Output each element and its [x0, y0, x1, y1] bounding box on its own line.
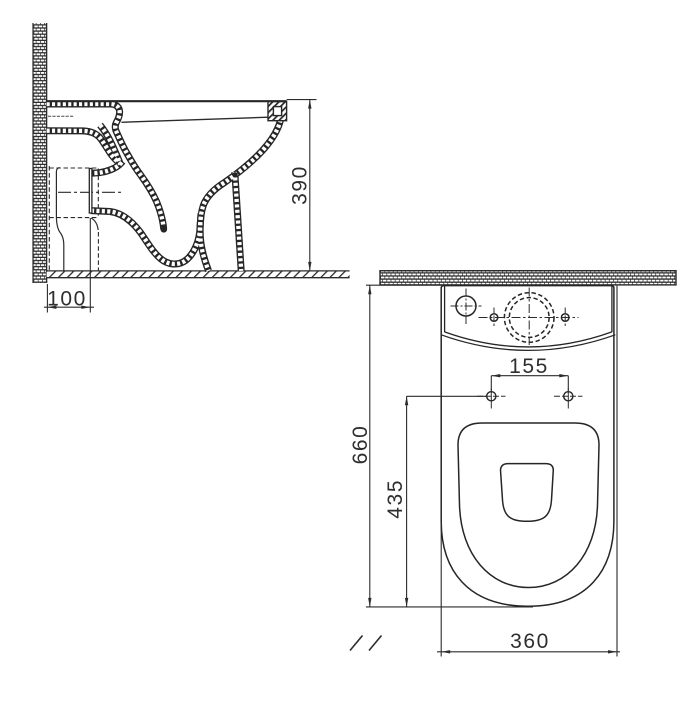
svg-text:155: 155: [509, 355, 549, 378]
svg-text:390: 390: [288, 165, 311, 205]
svg-text:360: 360: [510, 630, 550, 653]
svg-text:435: 435: [384, 479, 407, 519]
svg-text:100: 100: [47, 288, 87, 311]
svg-text:660: 660: [349, 425, 372, 465]
